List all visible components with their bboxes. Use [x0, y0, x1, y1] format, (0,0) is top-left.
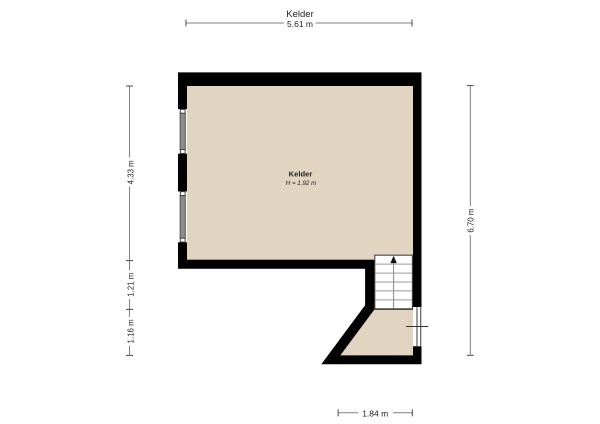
svg-text:4.33 m: 4.33 m [127, 160, 136, 185]
svg-text:H = 1.92 m: H = 1.92 m [286, 180, 316, 187]
svg-text:1.84 m: 1.84 m [362, 408, 388, 418]
svg-text:Kelder: Kelder [289, 169, 313, 178]
svg-text:5.61 m: 5.61 m [287, 19, 313, 29]
svg-text:Kelder: Kelder [286, 9, 313, 20]
svg-text:1.21 m: 1.21 m [127, 272, 136, 297]
svg-text:1.16 m: 1.16 m [127, 319, 136, 344]
svg-text:6.70 m: 6.70 m [466, 208, 475, 233]
